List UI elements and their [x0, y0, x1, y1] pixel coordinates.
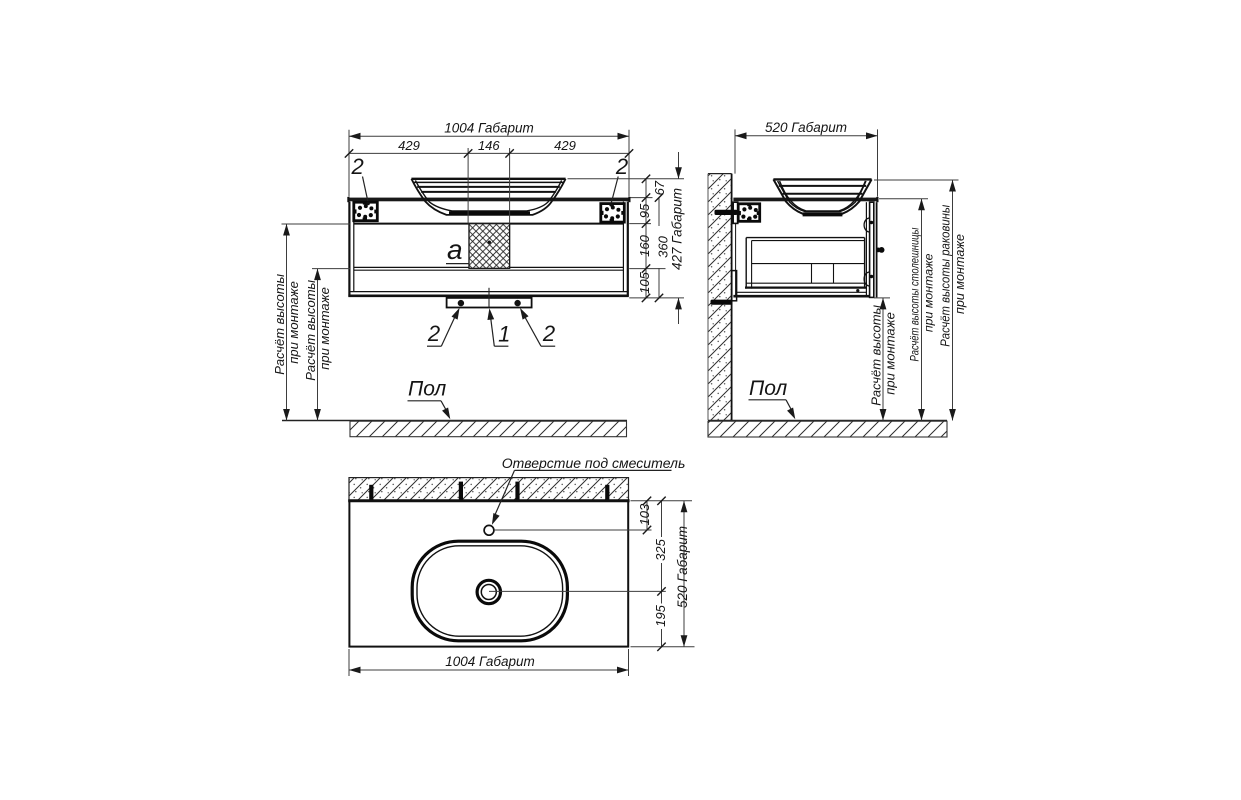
svg-text:520 Габарит: 520 Габарит [675, 526, 690, 608]
svg-text:Расчёт высоты при монтаже: Расчёт высоты при монтаже [303, 276, 332, 380]
svg-text:103: 103 [637, 503, 652, 525]
svg-text:67: 67 [652, 180, 667, 195]
svg-text:2: 2 [615, 154, 628, 179]
svg-text:1: 1 [498, 322, 510, 347]
svg-text:2: 2 [542, 321, 555, 346]
svg-text:105: 105 [637, 271, 652, 293]
svg-text:520 Габарит: 520 Габарит [765, 120, 847, 135]
svg-text:429: 429 [554, 138, 576, 153]
svg-text:427 Габарит: 427 Габарит [669, 188, 684, 270]
svg-text:1004 Габарит: 1004 Габарит [445, 654, 535, 669]
svg-text:Расчёт высоты при монтаже: Расчёт высоты при монтаже [868, 301, 897, 405]
svg-text:160: 160 [637, 234, 652, 256]
svg-text:a: a [447, 234, 463, 265]
svg-text:95: 95 [637, 203, 652, 218]
svg-text:325: 325 [653, 538, 668, 560]
svg-text:360: 360 [655, 235, 670, 257]
svg-text:Отверстие под смеситель: Отверстие под смеситель [502, 455, 686, 471]
svg-text:Расчёт высоты при монтаже: Расчёт высоты при монтаже [272, 270, 301, 374]
svg-text:Пол: Пол [408, 378, 446, 401]
svg-text:1004 Габарит: 1004 Габарит [444, 121, 534, 136]
svg-text:146: 146 [478, 138, 500, 153]
svg-text:195: 195 [653, 604, 668, 626]
svg-text:2: 2 [427, 321, 440, 346]
svg-text:Пол: Пол [749, 377, 787, 400]
svg-text:2: 2 [350, 154, 363, 179]
svg-text:429: 429 [398, 138, 420, 153]
